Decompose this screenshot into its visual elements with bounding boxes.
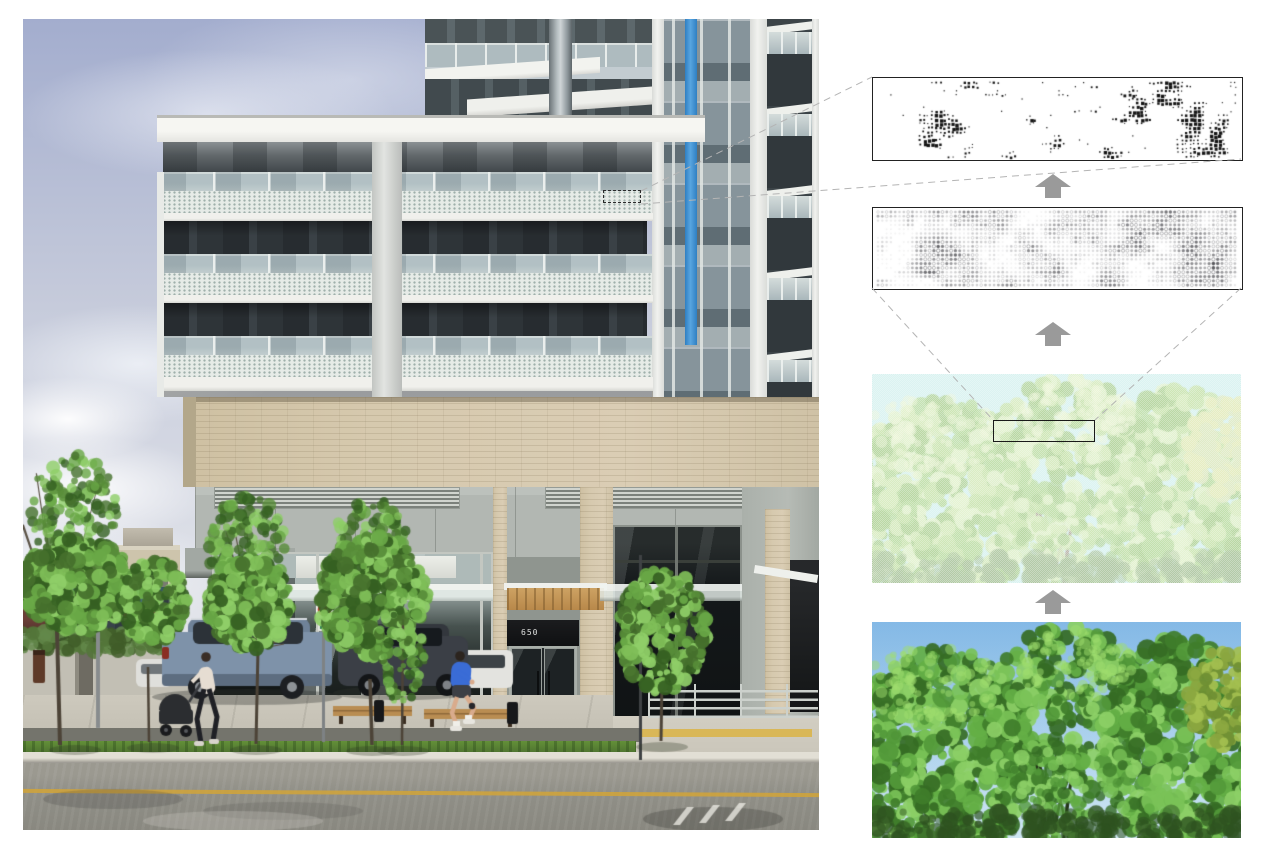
- frit-sample-annotation: [603, 190, 641, 203]
- dithered-tree-canvas: [872, 374, 1241, 583]
- panel-dithered-tree: [872, 374, 1241, 583]
- building-photo: 650: [23, 19, 819, 830]
- architectural-diagram-page: 650: [0, 0, 1280, 853]
- up-arrow-icon: [1035, 590, 1071, 614]
- panel-frit-dot-pattern: [872, 77, 1243, 161]
- photo-organic-layer: [23, 19, 819, 830]
- up-arrow-icon: [1035, 322, 1071, 346]
- panel-halftone-dot-pattern: [872, 207, 1243, 290]
- panel-tree-photo: [872, 622, 1241, 838]
- pattern-source-region: [993, 420, 1095, 442]
- up-arrow-icon: [1035, 174, 1071, 198]
